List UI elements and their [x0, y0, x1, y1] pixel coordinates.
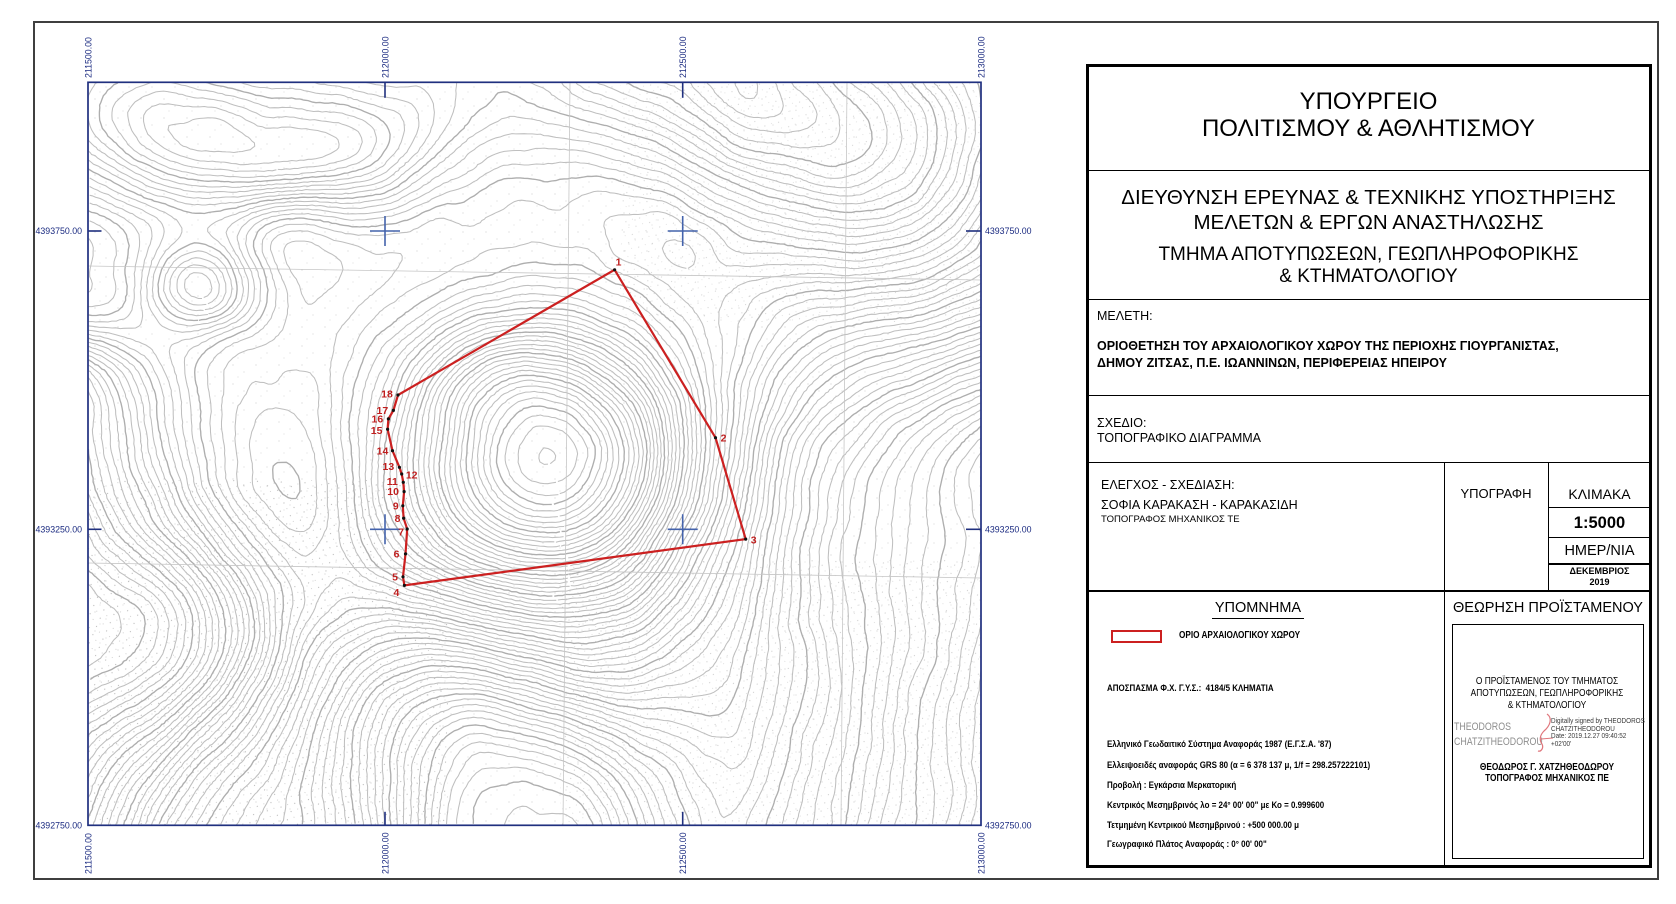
- svg-text:4393250.00: 4393250.00: [36, 525, 83, 535]
- svg-text:14: 14: [377, 445, 389, 457]
- svg-text:11: 11: [387, 476, 398, 488]
- svg-text:3: 3: [751, 535, 757, 547]
- svg-text:4393750.00: 4393750.00: [36, 226, 83, 236]
- svg-text:8: 8: [395, 513, 401, 525]
- svg-text:10: 10: [387, 486, 399, 498]
- svg-text:6: 6: [394, 549, 400, 561]
- svg-text:13: 13: [383, 461, 395, 473]
- svg-text:211500.00: 211500.00: [84, 833, 94, 874]
- svg-text:9: 9: [393, 500, 399, 512]
- svg-text:212500.00: 212500.00: [678, 832, 688, 874]
- svg-text:212500.00: 212500.00: [678, 36, 688, 78]
- svg-text:213000.00: 213000.00: [976, 832, 986, 874]
- svg-text:4392750.00: 4392750.00: [985, 821, 1032, 831]
- svg-text:213000.00: 213000.00: [976, 36, 986, 78]
- svg-text:1: 1: [616, 256, 622, 268]
- svg-text:18: 18: [381, 389, 393, 401]
- svg-text:212000.00: 212000.00: [381, 36, 391, 78]
- svg-text:12: 12: [406, 470, 418, 482]
- svg-text:4: 4: [393, 587, 399, 599]
- svg-text:212000.00: 212000.00: [381, 832, 391, 874]
- svg-text:4393250.00: 4393250.00: [985, 525, 1032, 535]
- svg-text:5: 5: [392, 571, 398, 583]
- svg-text:7: 7: [398, 527, 404, 539]
- svg-text:2: 2: [721, 432, 727, 444]
- svg-text:211500.00: 211500.00: [84, 37, 94, 78]
- svg-text:17: 17: [377, 405, 389, 417]
- svg-text:4392750.00: 4392750.00: [36, 821, 83, 831]
- svg-text:15: 15: [371, 425, 383, 437]
- svg-text:4393750.00: 4393750.00: [985, 226, 1032, 236]
